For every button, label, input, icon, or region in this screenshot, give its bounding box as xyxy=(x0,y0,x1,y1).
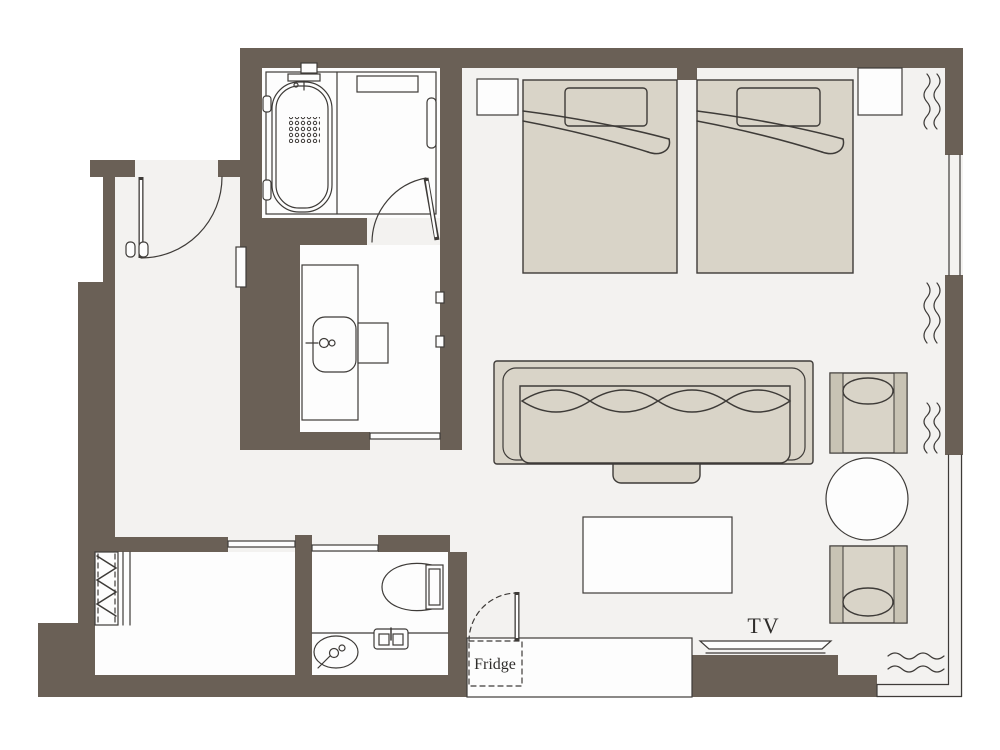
wall-right-upper xyxy=(945,68,963,155)
wall-left-step xyxy=(38,623,78,675)
toilet-door-threshold xyxy=(312,545,378,551)
wall-toilet-top xyxy=(378,535,450,552)
slipper-2 xyxy=(139,242,148,257)
wall-bathroom-left xyxy=(240,48,262,237)
wall-bottom xyxy=(38,675,467,697)
closet-door-threshold xyxy=(228,541,295,547)
nightstand-1 xyxy=(477,79,518,115)
vanity-wall-handle-1 xyxy=(436,292,444,303)
bed-1-pillow xyxy=(565,88,647,126)
armchair-1-cushion xyxy=(843,378,893,404)
fridge-label: Fridge xyxy=(474,656,516,673)
tv-label: TV xyxy=(747,613,780,638)
wall-left-lower xyxy=(78,537,95,675)
armchair-1-arm-right xyxy=(894,373,907,453)
vanity-wall-handle-2 xyxy=(436,336,444,347)
floor-plan-page: Fridge TV xyxy=(0,0,1000,750)
wall-hall-vanity xyxy=(240,237,300,450)
slipper-1 xyxy=(126,242,135,257)
wall-entry-stem xyxy=(103,177,115,282)
armchair-2-cushion xyxy=(843,588,893,616)
armchair-2-arm-left xyxy=(830,546,843,623)
closet-room-floor xyxy=(95,552,295,675)
wall-closet-top xyxy=(78,537,228,552)
wall-right-middle xyxy=(945,275,963,455)
tub-faucet-bar xyxy=(288,74,320,81)
coffee-table xyxy=(583,517,732,593)
wall-top xyxy=(240,48,963,68)
bathtub xyxy=(272,82,332,212)
wall-entry-header xyxy=(218,160,262,177)
armchair-2 xyxy=(830,546,907,623)
vanity-door-threshold xyxy=(370,433,440,439)
basin-faucet-knob-1 xyxy=(330,649,339,658)
nightstand-2 xyxy=(858,68,902,115)
wall-tv-step xyxy=(838,675,877,697)
wall-pillar-between-beds xyxy=(677,68,697,80)
wall-left-main xyxy=(78,282,115,537)
bath-mat-dots xyxy=(289,117,320,143)
shower-hook-2 xyxy=(263,180,271,200)
bed-2-pillow xyxy=(737,88,820,126)
wall-vanity-bottom xyxy=(300,432,370,450)
wall-tv xyxy=(692,655,838,697)
armchair-1-arm-left xyxy=(830,373,843,453)
wall-center-vertical xyxy=(440,48,462,450)
vanity-stool xyxy=(358,323,388,363)
bath-shelf xyxy=(357,76,418,92)
wall-entry-tbar xyxy=(90,160,135,177)
towel-bar xyxy=(427,98,436,148)
tub-faucet-body xyxy=(301,63,317,73)
floor-plan: Fridge TV xyxy=(0,0,1000,750)
ottoman xyxy=(613,464,700,483)
round-table xyxy=(826,458,908,540)
tv xyxy=(700,641,831,649)
basin-faucet-knob-2 xyxy=(339,645,345,651)
vanity-faucet-knob-1 xyxy=(320,339,329,348)
vanity-faucet-knob-2 xyxy=(329,340,335,346)
bed-1 xyxy=(523,80,677,273)
shower-hook-1 xyxy=(263,96,271,112)
armchair-2-arm-right xyxy=(894,546,907,623)
wall-closet-toilet-divider xyxy=(295,535,312,675)
armchair-1 xyxy=(830,373,907,453)
hallway-niche xyxy=(236,247,246,287)
wall-fridge-left xyxy=(448,552,467,697)
bed-2 xyxy=(697,80,853,273)
